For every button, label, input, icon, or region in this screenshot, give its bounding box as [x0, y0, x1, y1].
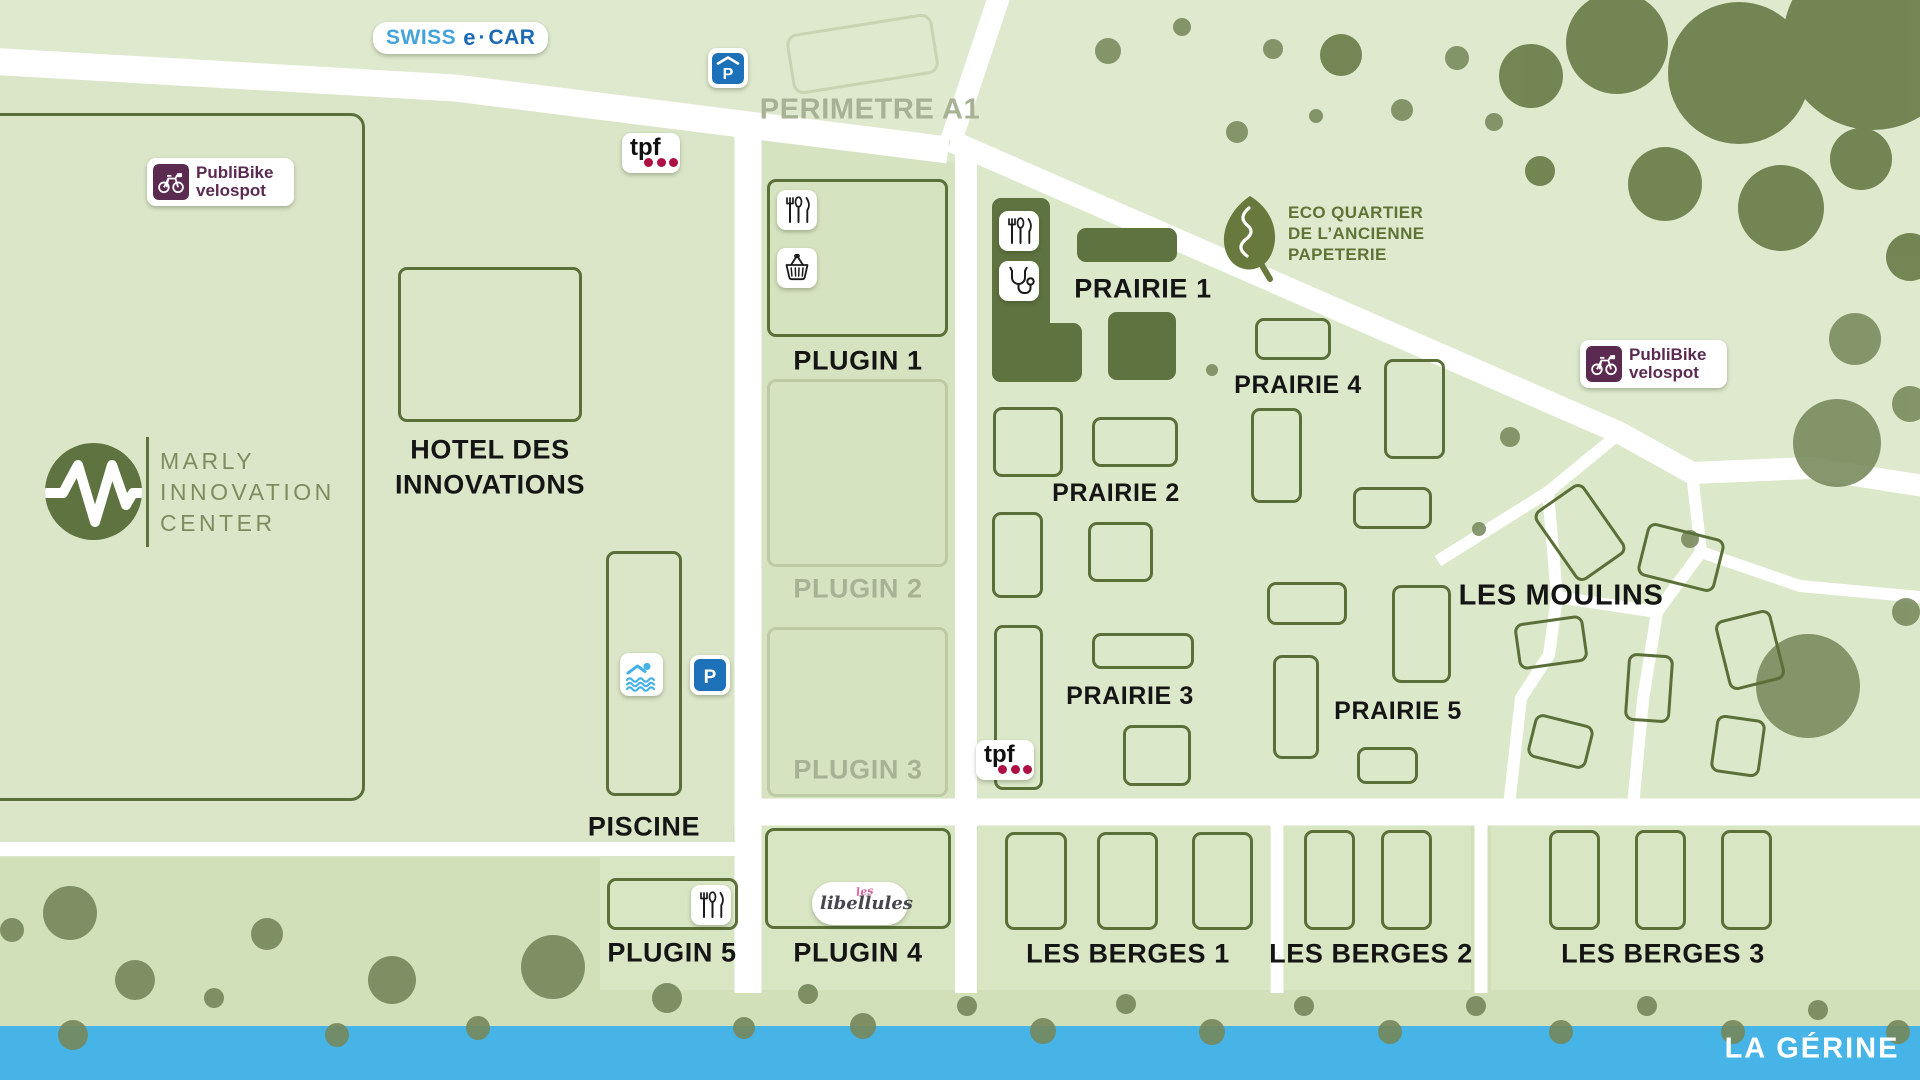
- label-prairie1: PRAIRIE 1: [1074, 272, 1211, 307]
- publibike-badge: PubliBike velospot: [147, 158, 294, 206]
- label-prairie3: PRAIRIE 3: [1066, 680, 1194, 712]
- swiss-ecar-dot: ·: [478, 26, 485, 50]
- label-hotel-line2: INNOVATIONS: [395, 469, 585, 499]
- les-libellules-badge: les libellules: [812, 882, 908, 925]
- prairie1-building-bar: [1077, 228, 1177, 262]
- river-la-gerine: [0, 1026, 1920, 1080]
- stethoscope-icon: [999, 261, 1039, 301]
- berges1-building: [1005, 832, 1067, 930]
- berges3-building: [1721, 830, 1772, 930]
- tpf-dots: [644, 158, 678, 167]
- plugin2-building: [767, 379, 948, 567]
- label-plugin2: PLUGIN 2: [793, 572, 922, 607]
- berges1-building: [1192, 832, 1253, 930]
- label-prairie5: PRAIRIE 5: [1334, 695, 1462, 727]
- berges2-building: [1381, 830, 1432, 930]
- label-plugin4: PLUGIN 4: [793, 936, 922, 971]
- parking-letter: P: [723, 66, 734, 83]
- publibike-name: PubliBike: [1629, 345, 1706, 364]
- prairie4-building: [1251, 408, 1302, 503]
- marly-line3: CENTER: [160, 510, 276, 536]
- libellules-prefix: les: [855, 884, 874, 899]
- prairie1-building-l: [992, 323, 1082, 382]
- prairie5-building: [1392, 585, 1451, 683]
- prairie2-building: [992, 512, 1043, 598]
- swiss-ecar-badge: SWISS e · CAR: [373, 22, 548, 54]
- publibike-name: PubliBike: [196, 163, 273, 182]
- swiss-ecar-word1: SWISS: [386, 26, 456, 50]
- prairie3-building: [1123, 725, 1191, 786]
- label-berges3: LES BERGES 3: [1561, 937, 1765, 972]
- berges2-building: [1304, 830, 1355, 930]
- tpf-dots: [998, 765, 1032, 774]
- swimmer-icon: [620, 653, 663, 696]
- prairie4-building: [1255, 318, 1331, 360]
- marly-line1: MARLY: [160, 448, 255, 474]
- prairie4-building: [1353, 487, 1432, 529]
- prairie1-building-square: [1108, 312, 1176, 380]
- moulins-building: [1709, 714, 1767, 778]
- label-plugin1: PLUGIN 1: [793, 344, 922, 379]
- prairie2-building: [1088, 522, 1153, 582]
- tpf-stop-badge: tpf: [622, 133, 680, 173]
- parking-letter: P: [704, 667, 717, 688]
- shopping-basket-icon: [777, 248, 817, 288]
- label-plugin5: PLUGIN 5: [607, 936, 736, 971]
- label-hotel-line1: HOTEL DES: [410, 434, 569, 464]
- bike-icon: [1586, 346, 1622, 382]
- label-perimetre-a1: PERIMETRE A1: [760, 91, 980, 128]
- hotel-building: [398, 267, 582, 422]
- label-berges2: LES BERGES 2: [1269, 937, 1473, 972]
- label-piscine: PISCINE: [588, 810, 700, 845]
- marly-line2: INNOVATION: [160, 479, 335, 505]
- restaurant-icon: [777, 190, 817, 230]
- publibike-velospot: velospot: [196, 181, 266, 200]
- moulins-building: [1513, 614, 1589, 670]
- les-moulins-paths: [1438, 433, 1920, 806]
- covered-parking-icon: P: [708, 48, 748, 88]
- parking-icon: P: [690, 655, 730, 695]
- prairie5-building: [1267, 582, 1347, 625]
- label-hotel: HOTEL DES INNOVATIONS: [395, 432, 585, 501]
- moulins-building: [1624, 652, 1675, 723]
- tpf-stop-badge: tpf: [976, 740, 1034, 780]
- label-berges1: LES BERGES 1: [1026, 937, 1230, 972]
- marly-wave-icon: [45, 443, 142, 540]
- publibike-badge: PubliBike velospot: [1580, 340, 1727, 388]
- prairie3-building: [1092, 633, 1194, 669]
- publibike-velospot: velospot: [1629, 363, 1699, 382]
- label-prairie2: PRAIRIE 2: [1052, 477, 1180, 509]
- eco-line2: DE L’ANCIENNE: [1288, 224, 1425, 243]
- swiss-ecar-word3: CAR: [488, 26, 535, 50]
- label-la-gerine: LA GÉRINE: [1725, 1030, 1900, 1067]
- eco-line3: PAPETERIE: [1288, 245, 1387, 264]
- berges3-building: [1549, 830, 1600, 930]
- prairie2-building: [993, 407, 1063, 477]
- restaurant-icon: [999, 211, 1039, 251]
- prairie4-building: [1384, 359, 1445, 459]
- swiss-ecar-word2: e: [463, 25, 475, 51]
- label-plugin3: PLUGIN 3: [793, 753, 922, 788]
- label-les-moulins: LES MOULINS: [1459, 577, 1664, 614]
- bike-icon: [153, 164, 189, 200]
- eco-line1: ECO QUARTIER: [1288, 203, 1423, 222]
- prairie2-building: [1092, 417, 1178, 467]
- label-prairie4: PRAIRIE 4: [1234, 369, 1362, 401]
- restaurant-icon: [691, 885, 731, 925]
- prairie5-building: [1357, 747, 1418, 784]
- prairie5-building: [1273, 655, 1319, 759]
- site-map: PERIMETRE A1 HOTEL DES INNOVATIONS PISCI…: [0, 0, 1920, 1080]
- berges1-building: [1097, 832, 1158, 930]
- berges3-building: [1635, 830, 1686, 930]
- leaf-icon: [1218, 194, 1284, 284]
